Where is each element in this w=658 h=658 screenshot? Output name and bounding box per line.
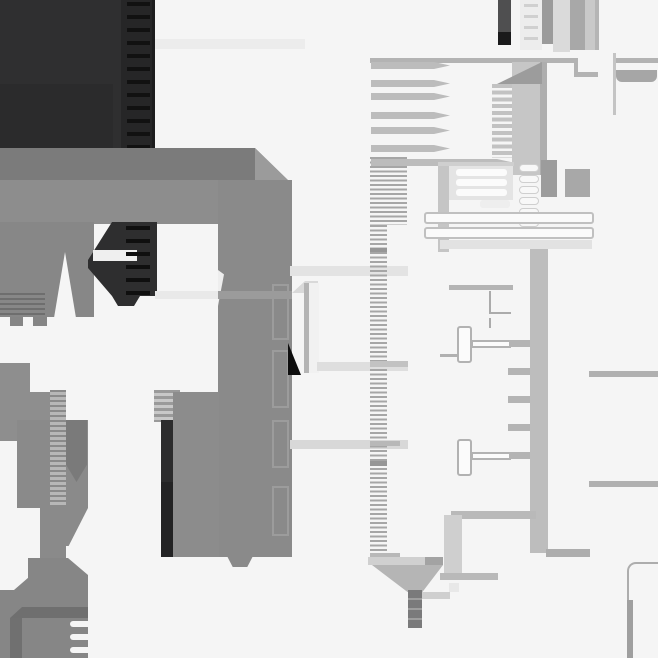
right-arm-tooth (227, 556, 253, 567)
column-foot (546, 549, 590, 557)
pin-1 (371, 62, 450, 69)
arm-inset-3 (272, 420, 289, 468)
pillar-body (309, 283, 319, 373)
bottom-dark-band (10, 607, 88, 618)
arm-inset-2 (272, 350, 289, 408)
rounded-corner (627, 562, 658, 578)
c-top-arm-shade (0, 148, 255, 180)
cap-line (449, 285, 513, 290)
capsule-3 (519, 186, 539, 194)
rail-1 (424, 212, 594, 224)
ruler-upper (370, 157, 407, 225)
sky-bar-2-rungs (524, 4, 538, 48)
panel-cap-2 (456, 179, 507, 186)
sky-bar-1-tip (498, 32, 511, 45)
stem-left (40, 505, 66, 560)
capsule-1 (519, 164, 539, 172)
tbone-1-arm (471, 340, 511, 348)
stem-ticks (408, 590, 422, 628)
top-hline-step-h (578, 72, 598, 77)
panel-cap-4 (480, 200, 510, 208)
tbone-1-stub (509, 340, 530, 347)
sky-bar-6 (585, 0, 595, 50)
sky-bar-4 (553, 0, 570, 52)
ruler-mark-1 (370, 248, 387, 252)
l-line-h (489, 312, 511, 314)
bottom-slot-3 (70, 647, 90, 653)
line-right-1 (589, 371, 658, 377)
ruler-mark-4 (370, 461, 387, 466)
sky-bar-7 (595, 0, 599, 50)
tbone-2 (457, 439, 472, 476)
zipper-edge (152, 0, 155, 150)
sky-bar-5 (570, 0, 585, 50)
panel-cap-3 (456, 189, 507, 196)
comb-teeth (492, 84, 512, 158)
top-hline-right (616, 58, 658, 63)
slider-ticks (126, 226, 150, 296)
tbone-1 (457, 326, 472, 363)
zipper-dashes (127, 2, 150, 150)
pin-5 (371, 127, 450, 134)
bottom-dark-strip (10, 618, 22, 658)
lower-left-strip (444, 515, 462, 577)
rounded-corner-bar (627, 600, 633, 658)
bottom-slot-2 (70, 634, 90, 640)
rounded-corner-vline (627, 576, 629, 602)
band-left-gray (218, 291, 292, 299)
ruler-mark-3 (370, 441, 400, 446)
dark-bar-lower (161, 482, 173, 557)
h-small (440, 354, 458, 357)
tab-1 (508, 368, 530, 375)
funnel-band-dark (425, 557, 443, 565)
band-below-rails (440, 240, 592, 249)
band-top (155, 39, 305, 49)
tab-3 (508, 424, 530, 431)
lower-top-band (451, 511, 536, 519)
band-center-1 (290, 266, 408, 276)
slab-right (173, 392, 219, 557)
arm-inset-4 (272, 486, 289, 536)
funnel (372, 565, 443, 592)
pin-4 (371, 112, 450, 119)
abstract-scene-canvas (0, 0, 658, 658)
lower-bottom-band (440, 573, 498, 580)
left-arm-tooth-1 (10, 317, 23, 326)
capsule-2 (519, 175, 539, 183)
rounded-tab (616, 70, 657, 82)
left-arm-tooth-2 (33, 317, 47, 326)
ruler-mark-2 (370, 361, 408, 367)
band-left-white (155, 291, 218, 299)
l-line-v2 (489, 318, 491, 328)
c-bevel-face (255, 148, 292, 184)
line-right-2 (589, 481, 658, 487)
sky-bar-3 (542, 0, 553, 44)
column (530, 249, 548, 553)
tbone-2-arm (471, 452, 511, 460)
capsule-4 (519, 197, 539, 205)
rail-2 (424, 227, 594, 239)
pin-3 (371, 93, 450, 100)
pin-2 (371, 80, 450, 87)
light-square (449, 583, 459, 592)
ruler-lower (370, 225, 387, 560)
taper-tri (66, 508, 88, 546)
tbone-2-stub (509, 452, 530, 459)
pin-6 (371, 145, 450, 152)
left-arm-ridges (0, 293, 45, 317)
l-line-v1 (489, 291, 491, 314)
panel-cap-1 (456, 169, 507, 176)
block-mid (565, 169, 590, 197)
dark-block-inner (0, 84, 113, 150)
tab-2 (508, 396, 530, 403)
bottom-slot-1 (70, 621, 90, 627)
block-dark (541, 160, 557, 197)
